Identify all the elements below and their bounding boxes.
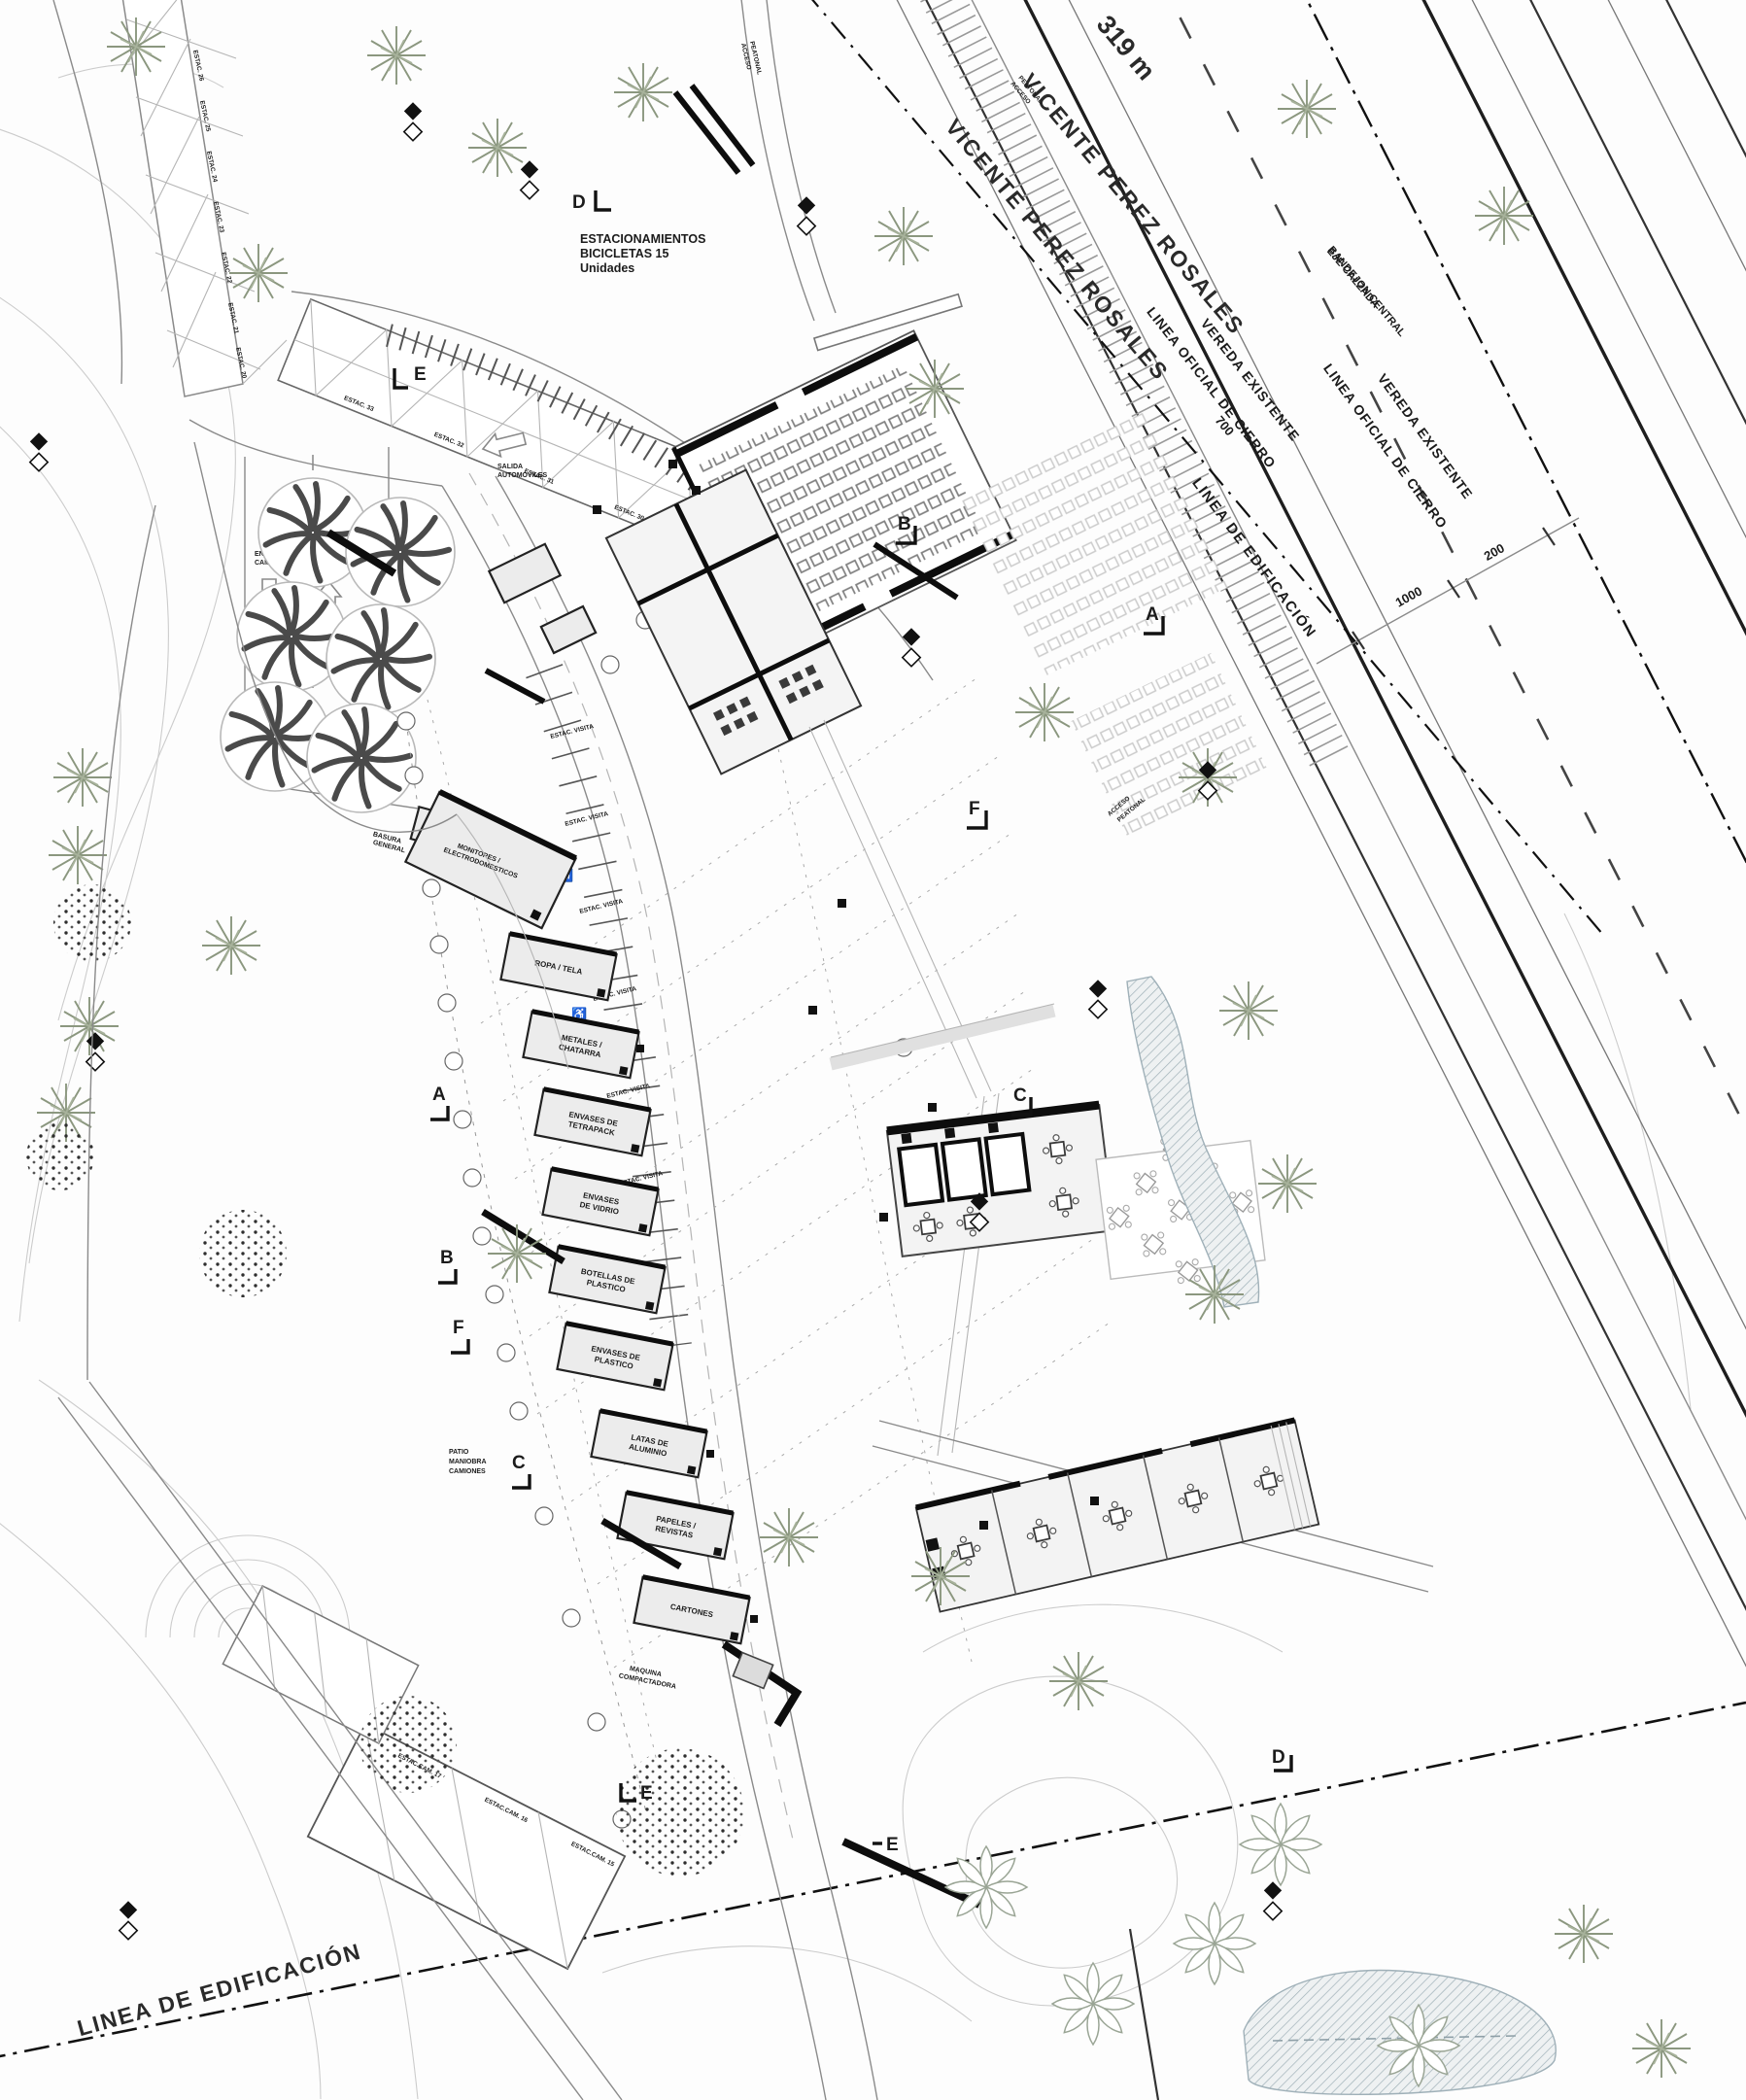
section-marker-c: C	[512, 1453, 526, 1473]
recycling-building: CARTONES	[633, 1577, 749, 1643]
tree-icon	[1278, 80, 1336, 138]
survey-marker-icon	[892, 628, 931, 667]
section-marker-b: B	[898, 514, 911, 534]
survey-marker-icon	[1078, 980, 1117, 1018]
survey-marker-icon	[510, 160, 549, 199]
section-marker-a: A	[432, 1084, 446, 1105]
car-exit-label-1: SALIDA	[497, 464, 523, 470]
section-marker-d: D	[572, 192, 586, 213]
tree-icon	[1555, 1905, 1613, 1963]
section-marker-c: C	[1013, 1085, 1027, 1106]
section-marker-d: D	[1272, 1747, 1285, 1768]
yard-label-2: MANIOBRA	[449, 1459, 487, 1465]
auditorium-stage	[814, 294, 962, 351]
street-name-upper: VICENTE PEREZ ROSALES	[1016, 68, 1250, 339]
car-exit-label-2: AUTOMOVILES	[497, 472, 548, 479]
recycling-building: ROPA / TELA	[500, 934, 616, 1000]
left-lower-road	[58, 1382, 622, 2100]
road-dimension-line: 1000 200	[1317, 518, 1579, 664]
tree-icon	[1632, 2019, 1691, 2078]
bandejon-label: BANDEJON CENTRAL	[1325, 244, 1408, 339]
section-marker-a: A	[1146, 604, 1159, 625]
tree-icon	[1258, 1154, 1317, 1213]
tree-icon	[1015, 683, 1074, 741]
sidewalk-label-2: VEREDA EXISTENTE	[1375, 370, 1476, 501]
lane-dashes	[1156, 0, 1746, 2100]
kiosk-building-2	[541, 606, 596, 653]
tree-icon	[229, 244, 288, 302]
survey-marker-icon	[1253, 1881, 1292, 1920]
palm-tree-icon	[1052, 1963, 1134, 2045]
sidewalk-hatch	[934, 0, 1331, 761]
survey-marker-icon	[787, 196, 826, 235]
bike-parking-label-2: BICICLETAS 15	[580, 247, 668, 260]
bike-parking-label-1: ESTACIONAMIENTOS	[580, 232, 705, 246]
parking-strip-left: ESTAC. 26 ESTAC. 25 ESTAC. 24 ESTAC. 23 …	[121, 0, 260, 396]
tree-icon	[1219, 981, 1278, 1040]
palm-tree-icon	[945, 1846, 1027, 1928]
section-marker-f: F	[453, 1318, 464, 1338]
bike-parking-label-3: Unidades	[580, 261, 634, 275]
section-marker-e: E	[886, 1835, 899, 1855]
outdoor-seating-upper	[961, 412, 1229, 676]
eje-calzada-line	[1292, 0, 1746, 2100]
tree-icon	[1049, 1652, 1108, 1710]
avenue-vicente-perez-rosales: 319 m VICENTE PEREZ ROSALES VICENTE PERE…	[805, 0, 1746, 2100]
tree-icon	[874, 207, 933, 265]
office-building	[916, 1420, 1318, 1611]
palm-tree-icon	[1174, 1903, 1255, 1984]
survey-marker-icon	[19, 432, 58, 471]
site-plan-drawing: 319 m VICENTE PEREZ ROSALES VICENTE PERE…	[0, 0, 1746, 2100]
tree-icon	[614, 63, 672, 121]
tree-icon	[488, 1224, 546, 1283]
recycling-building: LATAS DE ALUMINIO	[591, 1411, 706, 1477]
compactor-area: MAQUINA COMPACTADORA	[618, 1644, 797, 1725]
palm-tree-icon	[1378, 2005, 1459, 2086]
section-marker-f: F	[969, 799, 980, 819]
building-line-bottom-label: LINEA DE EDIFICACIÓN	[74, 1937, 364, 2041]
palm-trees	[945, 1804, 1459, 2086]
kiosk-building-1	[489, 544, 560, 602]
section-marker-e: E	[414, 364, 427, 385]
survey-marker-icon	[394, 102, 432, 141]
recycling-building: METALES / CHATARRA	[523, 1012, 638, 1078]
large-trees	[221, 478, 455, 812]
visitor-stall-label: ESTAC. VISITA	[550, 723, 595, 740]
yard-label-1: PATIO	[449, 1449, 469, 1456]
tree-icon	[468, 119, 527, 177]
survey-marker-icon	[109, 1901, 148, 1940]
tree-icon	[53, 748, 112, 807]
site-plan-page: 319 m VICENTE PEREZ ROSALES VICENTE PERE…	[0, 0, 1746, 2100]
tree-icon	[367, 26, 426, 85]
tree-icon	[760, 1508, 818, 1566]
tree-icon	[202, 916, 260, 975]
palm-tree-icon	[1240, 1804, 1321, 1885]
street-name-lower: VICENTE PEREZ ROSALES	[941, 114, 1174, 385]
recycling-building: PAPELES / REVISTAS	[617, 1493, 733, 1559]
yard-label-3: CAMIONES	[449, 1468, 486, 1475]
outdoor-seating-lower	[1071, 653, 1270, 843]
recycling-building: BOTELLAS DE PLASTICO	[549, 1247, 665, 1313]
recycling-building: ENVASES DE TETRAPACK	[534, 1089, 650, 1155]
road-length-label: 319 m	[1091, 10, 1161, 86]
tree-icon	[326, 604, 435, 713]
section-marker-b: B	[440, 1248, 454, 1268]
cafeteria-building	[887, 1105, 1114, 1257]
section-marker-e: E	[640, 1783, 653, 1804]
tree-icon	[49, 826, 107, 884]
truck-parking-main: ESTAC.CAM. 17 ESTAC.CAM. 16 ESTAC.CAM. 1…	[308, 1724, 625, 1969]
visitor-stall-label: ESTAC. VISITA	[606, 1083, 651, 1100]
